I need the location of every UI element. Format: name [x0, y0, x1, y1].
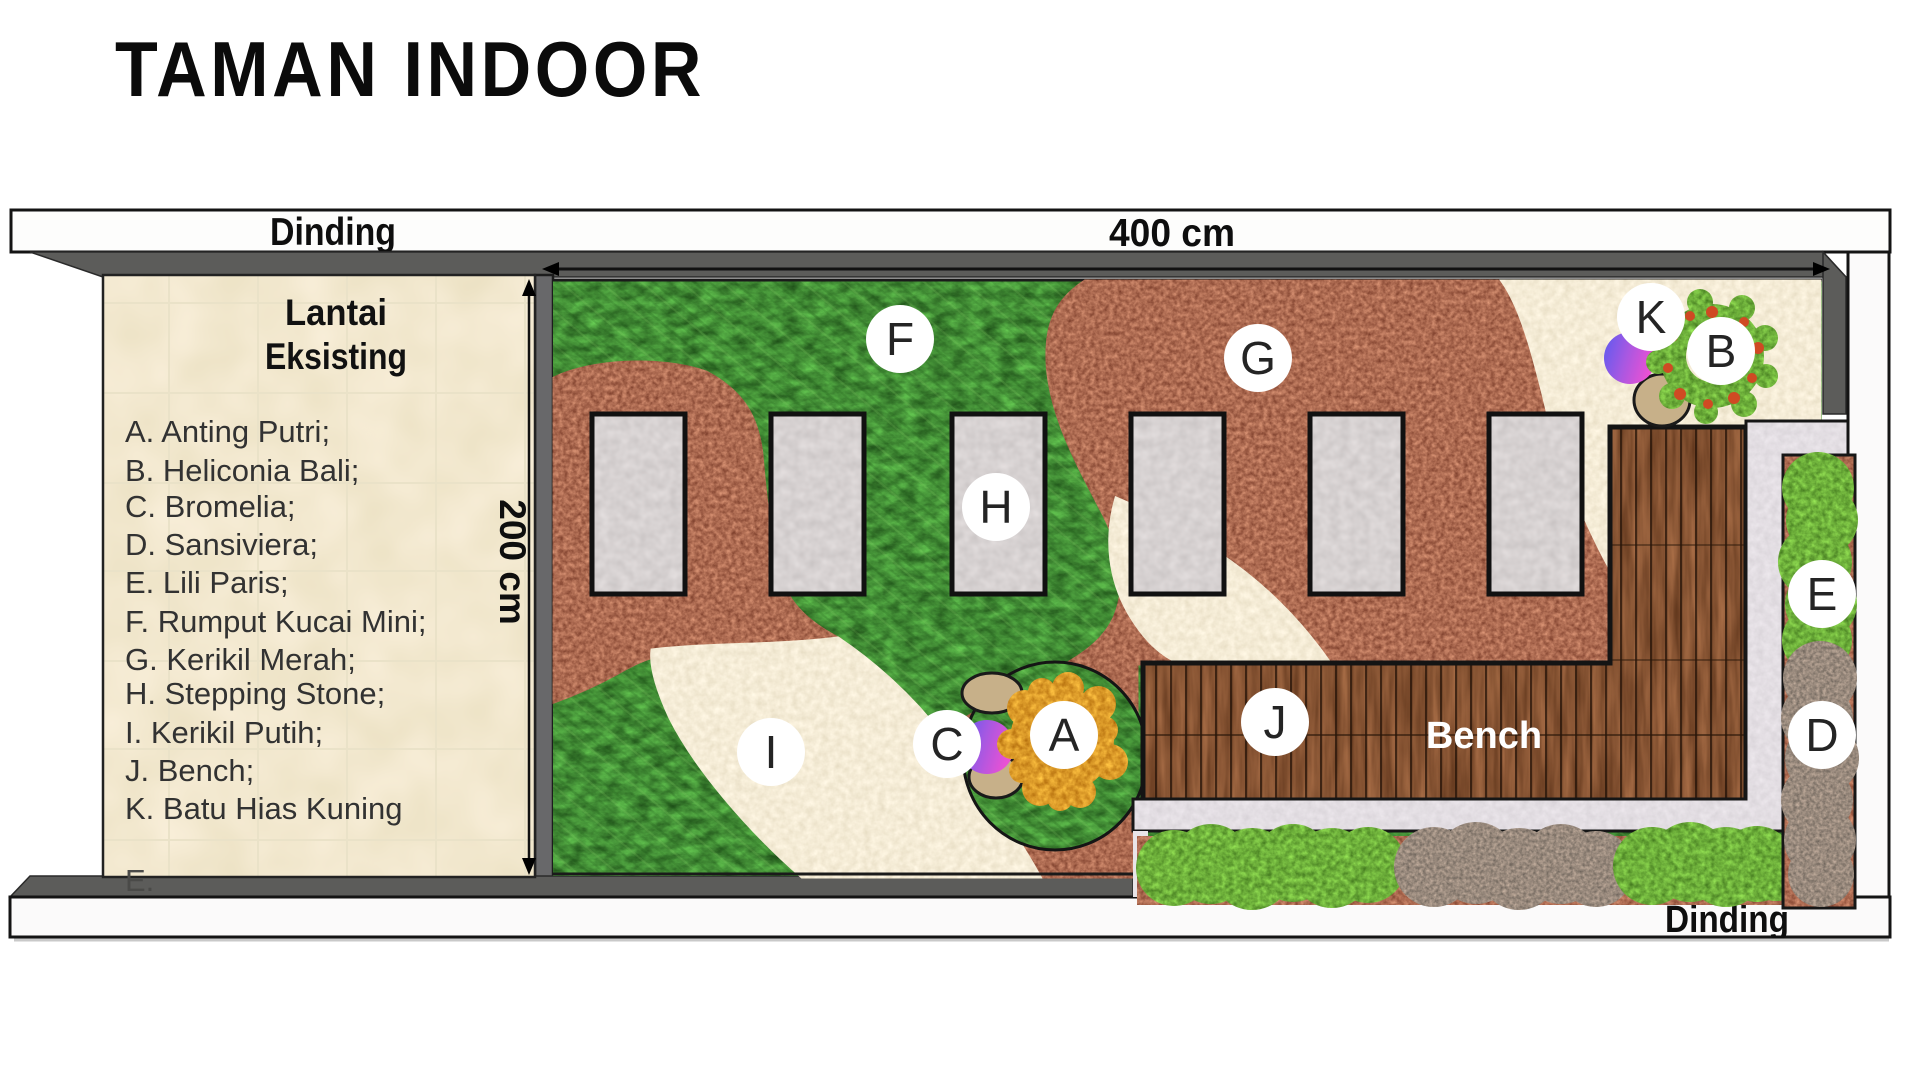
svg-text:B: B	[1706, 325, 1737, 377]
svg-text:Dinding: Dinding	[270, 211, 396, 254]
svg-text:K. Batu Hias Kuning: K. Batu Hias Kuning	[125, 791, 402, 826]
svg-text:A. Anting Putri;: A. Anting Putri;	[125, 414, 330, 449]
svg-text:E. Lili Paris;: E. Lili Paris;	[125, 565, 289, 600]
svg-text:C: C	[930, 718, 963, 770]
svg-text:Lantai: Lantai	[285, 292, 387, 333]
svg-text:D. Sansiviera;: D. Sansiviera;	[125, 527, 318, 562]
svg-text:400 cm: 400 cm	[1109, 212, 1235, 255]
svg-text:200 cm: 200 cm	[492, 499, 533, 625]
svg-text:I: I	[765, 726, 778, 778]
svg-text:B. Heliconia Bali;: B. Heliconia Bali;	[125, 453, 359, 488]
svg-text:Bench: Bench	[1426, 715, 1542, 757]
svg-text:E: E	[1807, 568, 1838, 620]
svg-text:H. Stepping Stone;: H. Stepping Stone;	[125, 676, 385, 711]
svg-text:Eksisting: Eksisting	[265, 336, 407, 377]
svg-text:H: H	[979, 481, 1012, 533]
svg-text:I. Kerikil Putih;: I. Kerikil Putih;	[125, 715, 323, 750]
svg-text:G. Kerikil Merah;: G. Kerikil Merah;	[125, 642, 356, 677]
svg-text:TAMAN INDOOR: TAMAN INDOOR	[115, 25, 705, 113]
svg-text:G: G	[1240, 332, 1276, 384]
svg-text:J. Bench;: J. Bench;	[125, 753, 254, 788]
svg-text:J: J	[1264, 696, 1287, 748]
svg-text:E.: E.	[125, 863, 154, 898]
svg-text:A: A	[1049, 709, 1080, 761]
svg-text:D: D	[1805, 709, 1838, 761]
svg-text:F. Rumput Kucai Mini;: F. Rumput Kucai Mini;	[125, 604, 427, 639]
svg-text:F: F	[886, 313, 914, 365]
svg-text:K: K	[1636, 291, 1667, 343]
svg-text:C. Bromelia;: C. Bromelia;	[125, 489, 296, 524]
